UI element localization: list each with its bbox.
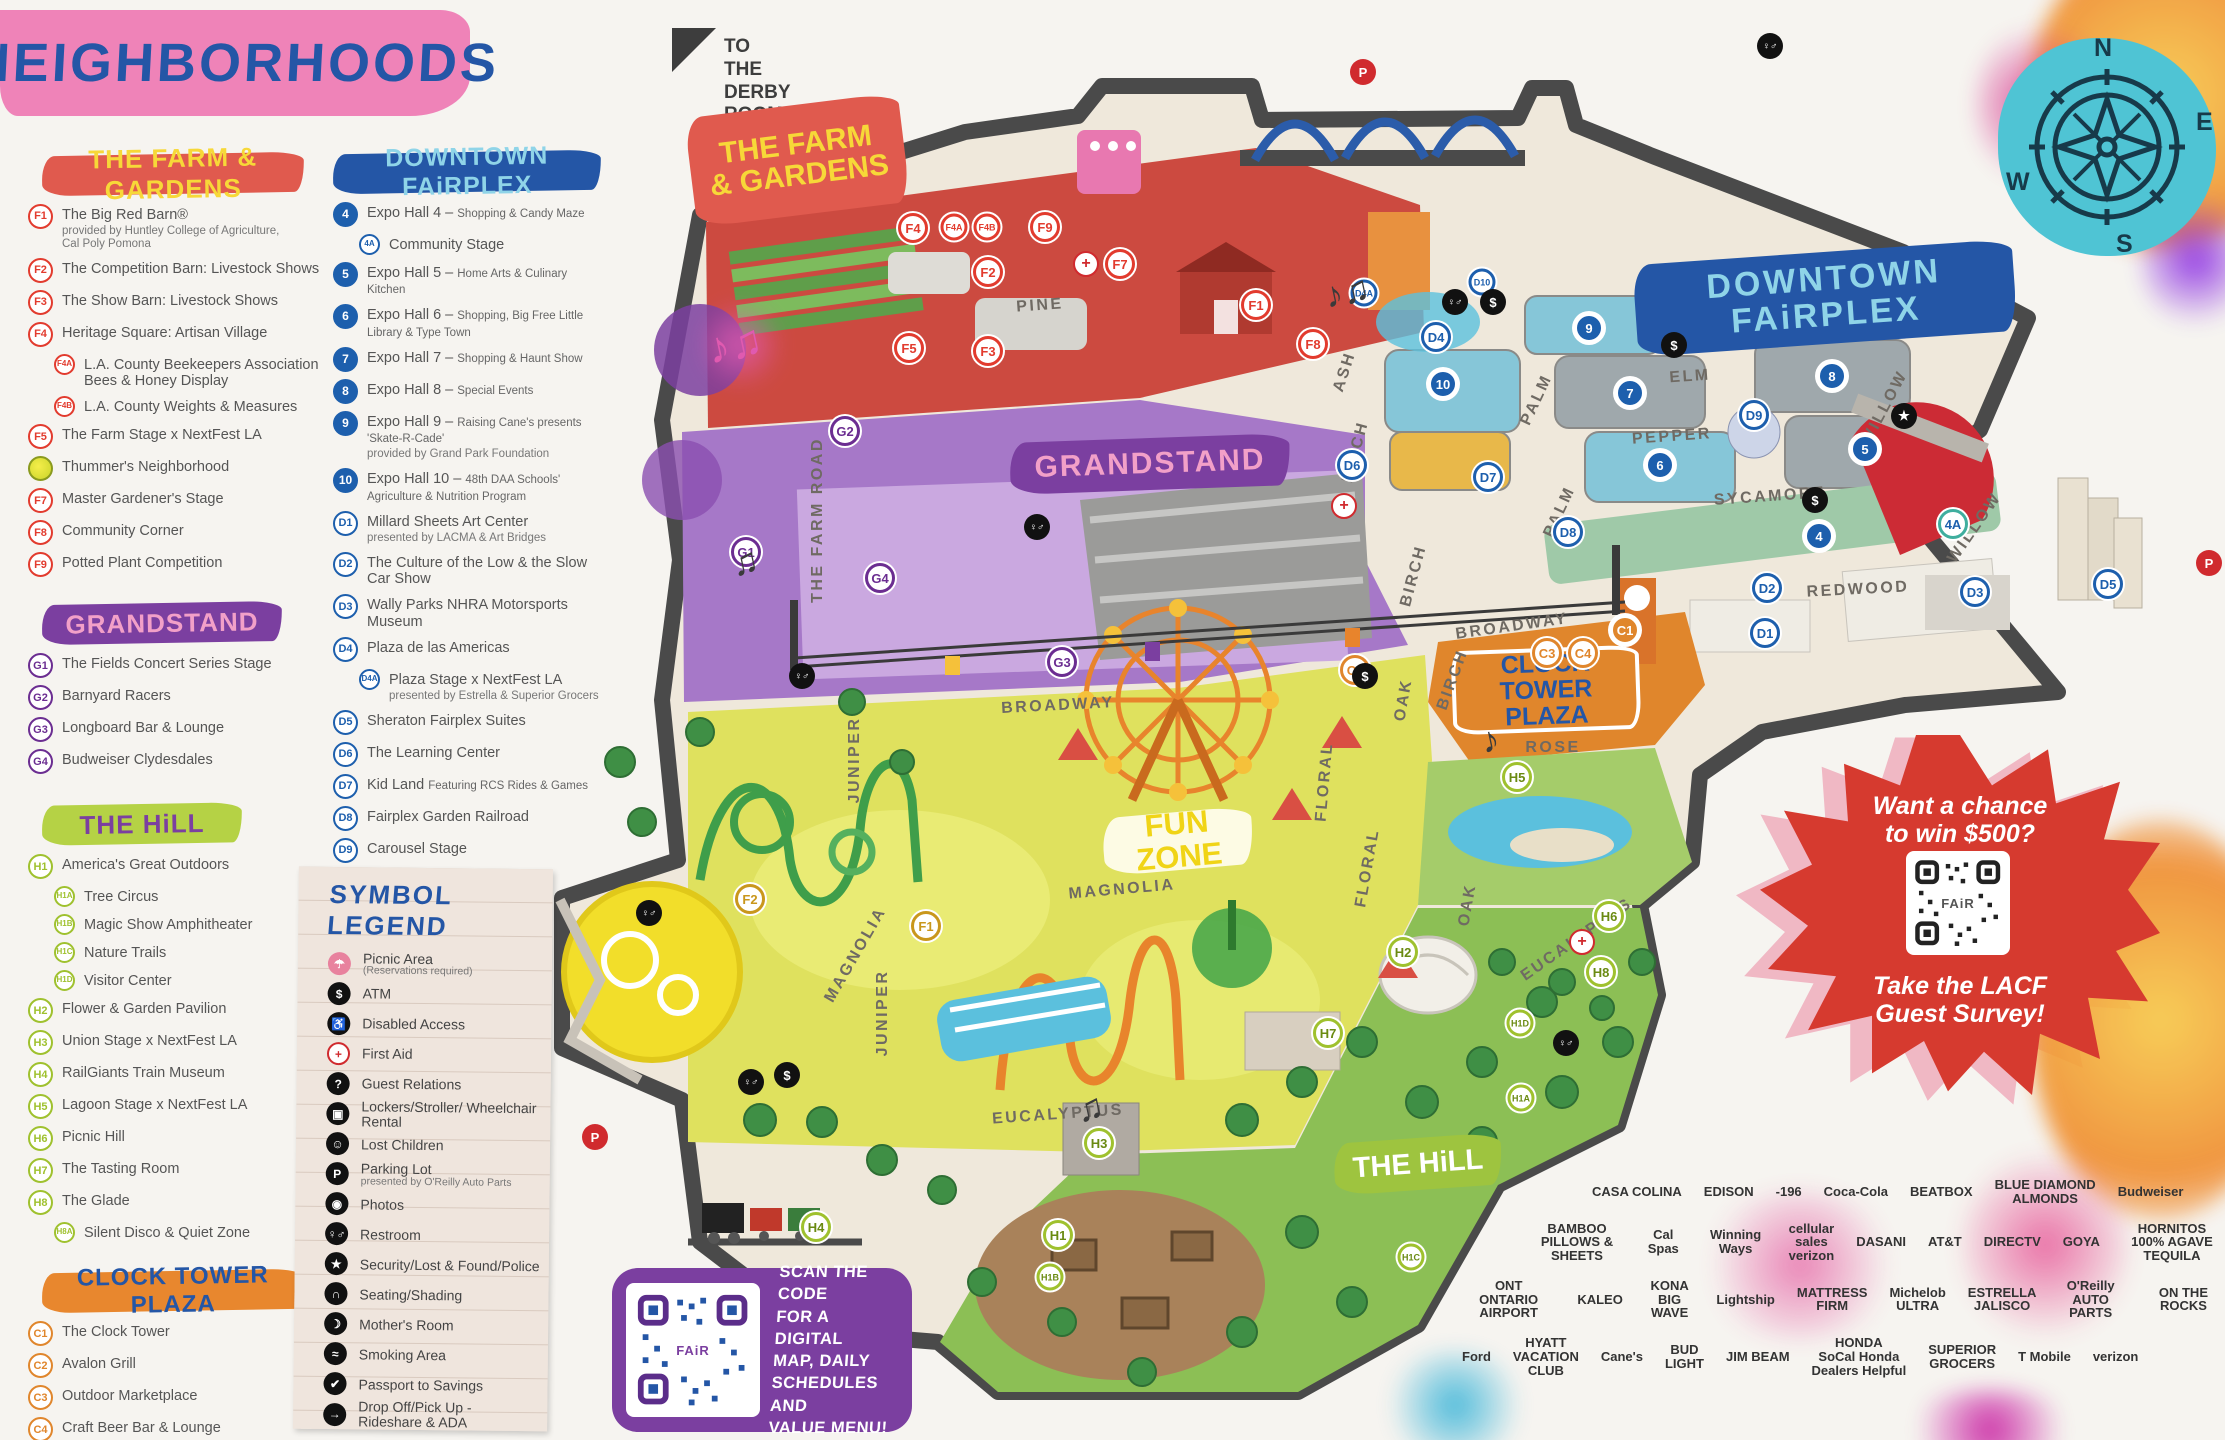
item-badge: F1 bbox=[28, 204, 53, 229]
sponsor-logo: MATTRESS FIRM bbox=[1797, 1286, 1868, 1314]
legend-item: 4A Community Stage bbox=[359, 234, 608, 255]
map-marker: D9 bbox=[1739, 400, 1769, 430]
item-badge: G1 bbox=[28, 653, 53, 678]
legend-item: H2 Flower & Garden Pavilion bbox=[28, 998, 323, 1023]
map-marker: D5 bbox=[2093, 569, 2123, 599]
legend-section-hill: THE HiLL H1 America's Great Outdoors H1A… bbox=[28, 804, 323, 1243]
sponsor-logo: KONA BIG WAVE bbox=[1645, 1279, 1695, 1320]
item-badge: 4A bbox=[359, 234, 380, 255]
item-badge: H3 bbox=[28, 1030, 53, 1055]
map-marker: 9 bbox=[1574, 313, 1604, 343]
legend-item: F9 Potted Plant Competition bbox=[28, 552, 323, 577]
legend-item: C3 Outdoor Marketplace bbox=[28, 1385, 323, 1410]
amenity-icon: ♀♂ bbox=[738, 1069, 764, 1095]
amenity-icon: + bbox=[1569, 929, 1595, 955]
symbol-label: Disabled Access bbox=[362, 1016, 465, 1033]
item-badge: H2 bbox=[28, 998, 53, 1023]
item-label: Fairplex Garden Railroad bbox=[367, 809, 529, 825]
item-label: Union Stage x NextFest LA bbox=[62, 1033, 237, 1049]
item-badge: 7 bbox=[333, 347, 358, 372]
item-badge: D7 bbox=[333, 774, 358, 799]
item-badge: H8 bbox=[28, 1190, 53, 1215]
symbol-legend-row: ≈ Smoking Area bbox=[324, 1339, 540, 1370]
sponsor-logo: O'Reilly AUTO PARTS bbox=[2058, 1279, 2122, 1320]
legend-item: D2 The Culture of the Low & the Slow Car… bbox=[333, 552, 608, 587]
item-label: Community Corner bbox=[62, 523, 184, 539]
item-label: The Fields Concert Series Stage bbox=[62, 656, 272, 672]
item-label: Budweiser Clydesdales bbox=[62, 752, 213, 768]
item-label: The Competition Barn: Livestock Shows bbox=[62, 261, 319, 277]
legend-item: H1B Magic Show Amphitheater bbox=[54, 914, 323, 935]
map-marker: C1 bbox=[1610, 615, 1640, 645]
symbol-label: Passport to Savings bbox=[358, 1376, 483, 1393]
item-badge: H1 bbox=[28, 854, 53, 879]
item-label: Heritage Square: Artisan Village bbox=[62, 325, 267, 341]
item-badge: D4A bbox=[359, 669, 380, 690]
item-badge: H1D bbox=[54, 970, 75, 991]
legend-item: H8A Silent Disco & Quiet Zone bbox=[54, 1222, 323, 1243]
map-marker: F2 bbox=[735, 884, 765, 914]
item-badge: F9 bbox=[28, 552, 53, 577]
symbol-label: First Aid bbox=[362, 1046, 413, 1063]
legend-item: G4 Budweiser Clydesdales bbox=[28, 749, 323, 774]
legend-item: H8 The Glade bbox=[28, 1190, 323, 1215]
item-label: RailGiants Train Museum bbox=[62, 1065, 225, 1081]
item-label: Expo Hall 7 – bbox=[367, 350, 453, 366]
item-badge: H8A bbox=[54, 1222, 75, 1243]
sponsor-logo: BUD LIGHT bbox=[1665, 1343, 1704, 1371]
legend-item: D1 Millard Sheets Art Centerpresented by… bbox=[333, 511, 608, 545]
fair-logo: FAiR bbox=[674, 1343, 712, 1358]
legend-item: 7 Expo Hall 7 –Shopping & Haunt Show bbox=[333, 347, 608, 372]
item-label: Silent Disco & Quiet Zone bbox=[84, 1225, 250, 1241]
map-marker: 10 bbox=[1428, 369, 1458, 399]
legend-column-left: THE FARM & GARDENS F1 The Big Red Barn®p… bbox=[28, 148, 323, 1440]
sponsor-logo: BAMBOO PILLOWS & SHEETS bbox=[1532, 1222, 1622, 1263]
item-label: Barnyard Racers bbox=[62, 688, 171, 704]
map-banner-grandstand: GRANDSTAND bbox=[1009, 433, 1291, 495]
item-label: Avalon Grill bbox=[62, 1356, 136, 1372]
sponsor-logo: Coca-Cola bbox=[1824, 1185, 1888, 1199]
section-list-farm: F1 The Big Red Barn®provided by Huntley … bbox=[28, 204, 323, 577]
amenity-icon: ♀♂ bbox=[1553, 1030, 1579, 1056]
legend-item: F1 The Big Red Barn®provided by Huntley … bbox=[28, 204, 323, 251]
map-marker: H6 bbox=[1594, 901, 1624, 931]
amenity-icon: $ bbox=[1480, 289, 1506, 315]
map-marker: H2 bbox=[1388, 937, 1418, 967]
item-label: Carousel Stage bbox=[367, 841, 467, 857]
sponsor-logo: HYATT VACATION CLUB bbox=[1513, 1336, 1579, 1377]
legend-item: Thummer's Neighborhood bbox=[28, 456, 323, 481]
map-marker: F1 bbox=[1241, 290, 1271, 320]
legend-item: 6 Expo Hall 6 –Shopping, Big Free Little… bbox=[333, 304, 608, 339]
item-label: Expo Hall 5 – bbox=[367, 265, 453, 281]
map-marker: 5 bbox=[1850, 434, 1880, 464]
sponsor-row-3: ONT ONTARIO AIRPORTKALEOKONA BIG WAVELig… bbox=[1462, 1279, 2222, 1320]
legend-item: D4 Plaza de las Americas bbox=[333, 637, 608, 662]
map-marker: F8 bbox=[1298, 329, 1328, 359]
item-badge: F7 bbox=[28, 488, 53, 513]
street-label: THE FARM ROAD bbox=[809, 437, 827, 603]
map-marker: H4 bbox=[801, 1212, 831, 1242]
legend-item: F8 Community Corner bbox=[28, 520, 323, 545]
map-marker: F4A bbox=[941, 214, 968, 241]
item-badge: D5 bbox=[333, 710, 358, 735]
legend-item: C1 The Clock Tower bbox=[28, 1321, 323, 1346]
amenity-icon: P bbox=[2196, 550, 2222, 576]
item-label: Tree Circus bbox=[84, 889, 158, 905]
symbol-label: Seating/Shading bbox=[359, 1286, 462, 1303]
item-badge: G4 bbox=[28, 749, 53, 774]
item-label: Magic Show Amphitheater bbox=[84, 917, 252, 933]
symbol-label: Security/Lost & Found/Police bbox=[360, 1256, 540, 1274]
item-badge: H6 bbox=[28, 1126, 53, 1151]
sponsor-logo: Cal Spas bbox=[1644, 1228, 1683, 1256]
amenity-icon: ♀♂ bbox=[1757, 33, 1783, 59]
map-marker: D8 bbox=[1553, 517, 1583, 547]
legend-item: D9 Carousel Stage bbox=[333, 838, 608, 863]
map-marker: G3 bbox=[1047, 647, 1077, 677]
sponsor-logo: Ford bbox=[1462, 1350, 1491, 1364]
section-list-downtown: 4 Expo Hall 4 –Shopping & Candy Maze 4A … bbox=[333, 202, 608, 895]
map-marker: F7 bbox=[1105, 249, 1135, 279]
item-badge: D8 bbox=[333, 806, 358, 831]
sponsor-row-2: BAMBOO PILLOWS & SHEETSCal SpasWinning W… bbox=[1532, 1222, 2222, 1263]
item-label: L.A. County Weights & Measures bbox=[84, 399, 297, 415]
item-badge: D1 bbox=[333, 511, 358, 536]
map-banner-fun-zone: FUN ZONE bbox=[1101, 806, 1255, 877]
symbol-legend-row: ◉ Photos bbox=[325, 1189, 541, 1220]
map-marker: H1A bbox=[1508, 1085, 1535, 1112]
map-marker: 6 bbox=[1645, 450, 1675, 480]
sponsor-logo: KALEO bbox=[1577, 1293, 1623, 1307]
legend-item: F4A L.A. County Beekeepers Association B… bbox=[54, 354, 323, 389]
legend-item: 9 Expo Hall 9 –Raising Cane's presents '… bbox=[333, 411, 608, 461]
symbol-legend-header: SYMBOL LEGEND bbox=[326, 879, 547, 943]
compass-icon bbox=[2019, 59, 2195, 235]
map-marker: F9 bbox=[1030, 212, 1060, 242]
symbol-label: Drop Off/Pick Up - Rideshare & ADA bbox=[358, 1399, 472, 1431]
street-label: ROSE bbox=[1525, 739, 1580, 757]
item-badge: C1 bbox=[28, 1321, 53, 1346]
item-badge: 6 bbox=[333, 304, 358, 329]
item-label: Longboard Bar & Lounge bbox=[62, 720, 224, 736]
symbol-icon: $ bbox=[328, 982, 351, 1005]
item-badge: D2 bbox=[333, 552, 358, 577]
item-label: America's Great Outdoors bbox=[62, 857, 229, 873]
sponsor-logo: -196 bbox=[1776, 1185, 1802, 1199]
section-list-clock-tower: C1 The Clock Tower C2 Avalon Grill C3 Ou… bbox=[28, 1321, 323, 1440]
item-label: Flower & Garden Pavilion bbox=[62, 1001, 226, 1017]
sponsor-logo: BLUE DIAMOND ALMONDS bbox=[1995, 1178, 2096, 1206]
symbol-label: Guest Relations bbox=[362, 1076, 462, 1093]
symbol-legend-row: ♿ Disabled Access bbox=[327, 1009, 543, 1040]
legend-item: F4 Heritage Square: Artisan Village bbox=[28, 322, 323, 347]
symbol-legend-row: ✔ Passport to Savings bbox=[323, 1369, 539, 1400]
symbol-legend-row: ∩ Seating/Shading bbox=[324, 1279, 540, 1310]
sponsor-logo: verizon bbox=[2093, 1350, 2139, 1364]
sponsor-logo: T Mobile bbox=[2018, 1350, 2071, 1364]
symbol-icon: ≈ bbox=[324, 1342, 347, 1365]
item-badge: 4 bbox=[333, 202, 358, 227]
item-label: Expo Hall 8 – bbox=[367, 382, 453, 398]
item-label: The Tasting Room bbox=[62, 1161, 179, 1177]
legend-item: D6 The Learning Center bbox=[333, 742, 608, 767]
map-marker: 7 bbox=[1615, 378, 1645, 408]
item-badge: G3 bbox=[28, 717, 53, 742]
item-label: Plaza Stage x NextFest LA bbox=[389, 672, 562, 688]
amenity-icon: $ bbox=[1802, 487, 1828, 513]
map-marker: C3 bbox=[1532, 638, 1562, 668]
sponsor-logo: Cane's bbox=[1601, 1350, 1643, 1364]
legend-item: C2 Avalon Grill bbox=[28, 1353, 323, 1378]
sponsor-logo: DASANI bbox=[1856, 1235, 1906, 1249]
street-label: ELM bbox=[1669, 367, 1711, 388]
map-marker: D7 bbox=[1473, 462, 1503, 492]
symbol-icon: ◉ bbox=[325, 1192, 348, 1215]
map-marker: D4 bbox=[1421, 322, 1451, 352]
sponsor-row-1: CASA COLINAEDISON-196Coca-ColaBEATBOXBLU… bbox=[1592, 1178, 2222, 1206]
compass-n: N bbox=[2094, 34, 2112, 63]
legend-item: H1A Tree Circus bbox=[54, 886, 323, 907]
symbol-label: ATM bbox=[363, 986, 392, 1002]
sponsor-logo: AT&T bbox=[1928, 1235, 1962, 1249]
legend-item: F7 Master Gardener's Stage bbox=[28, 488, 323, 513]
item-badge: F5 bbox=[28, 424, 53, 449]
item-label: Community Stage bbox=[389, 237, 504, 253]
map-marker: H8 bbox=[1586, 957, 1616, 987]
legend-item: F5 The Farm Stage x NextFest LA bbox=[28, 424, 323, 449]
sponsor-logo: Winning Ways bbox=[1705, 1228, 1767, 1256]
map-marker: H1B bbox=[1037, 1264, 1064, 1291]
item-badge: D4 bbox=[333, 637, 358, 662]
amenity-icon: $ bbox=[1352, 663, 1378, 689]
item-badge: 5 bbox=[333, 262, 358, 287]
symbol-legend-row: ☂ Picnic Area(Reservations required) bbox=[328, 949, 544, 980]
item-label: The Learning Center bbox=[367, 745, 500, 761]
legend-section-grandstand: GRANDSTAND G1 The Fields Concert Series … bbox=[28, 603, 323, 774]
legend-item: G1 The Fields Concert Series Stage bbox=[28, 653, 323, 678]
item-label: The Big Red Barn® bbox=[62, 207, 188, 223]
map-marker: F4 bbox=[898, 213, 928, 243]
symbol-legend-row: P Parking Lotpresented by O'Reilly Auto … bbox=[326, 1159, 542, 1190]
compass-s: S bbox=[2116, 230, 2133, 259]
legend-section-farm: THE FARM & GARDENS F1 The Big Red Barn®p… bbox=[28, 154, 323, 577]
amenity-icon: ♀♂ bbox=[1024, 514, 1050, 540]
item-badge: D6 bbox=[333, 742, 358, 767]
map-marker: F2 bbox=[973, 257, 1003, 287]
compass-rose: N E S W bbox=[1998, 38, 2216, 256]
symbol-legend-list: ☂ Picnic Area(Reservations required) $ A… bbox=[323, 949, 544, 1431]
item-label: Thummer's Neighborhood bbox=[62, 459, 229, 475]
section-list-hill: H1 America's Great Outdoors H1A Tree Cir… bbox=[28, 854, 323, 1243]
survey-starburst: Want a chance to win $500? FAiR Take the… bbox=[1760, 735, 2160, 1095]
amenity-icon: ★ bbox=[1891, 403, 1917, 429]
item-label: Nature Trails bbox=[84, 945, 166, 961]
legend-item: H1 America's Great Outdoors bbox=[28, 854, 323, 879]
legend-item: D3 Wally Parks NHRA Motorsports Museum bbox=[333, 594, 608, 629]
symbol-legend-row: + First Aid bbox=[327, 1039, 543, 1070]
item-label: Craft Beer Bar & Lounge bbox=[62, 1420, 221, 1436]
symbol-legend-row: ♀♂ Restroom bbox=[325, 1219, 541, 1250]
amenity-icon: + bbox=[1331, 493, 1357, 519]
legend-item: D5 Sheraton Fairplex Suites bbox=[333, 710, 608, 735]
amenity-icon: $ bbox=[1661, 332, 1687, 358]
symbol-icon: + bbox=[327, 1042, 350, 1065]
map-marker: G2 bbox=[830, 416, 860, 446]
item-badge: F8 bbox=[28, 520, 53, 545]
symbol-legend-panel: SYMBOL LEGEND ☂ Picnic Area(Reservations… bbox=[293, 867, 553, 1432]
legend-item: 4 Expo Hall 4 –Shopping & Candy Maze bbox=[333, 202, 608, 227]
item-label: The Show Barn: Livestock Shows bbox=[62, 293, 278, 309]
legend-section-clock-tower: CLOCK TOWER PLAZA C1 The Clock Tower C2 … bbox=[28, 1271, 323, 1440]
symbol-legend-row: ? Guest Relations bbox=[327, 1069, 543, 1100]
sponsor-logo: ON THE ROCKS bbox=[2145, 1286, 2222, 1314]
item-badge: F2 bbox=[28, 258, 53, 283]
item-badge: 8 bbox=[333, 379, 358, 404]
legend-item: H5 Lagoon Stage x NextFest LA bbox=[28, 1094, 323, 1119]
survey-headline: Want a chance to win $500? bbox=[1760, 793, 2160, 848]
sponsor-logo: ESTRELLA JALISCO bbox=[1968, 1286, 2037, 1314]
item-label: Visitor Center bbox=[84, 973, 172, 989]
symbol-icon: ☽ bbox=[324, 1312, 347, 1335]
legend-item: H3 Union Stage x NextFest LA bbox=[28, 1030, 323, 1055]
amenity-icon: + bbox=[1073, 251, 1099, 277]
page-title: NEIGHBORHOODS bbox=[0, 32, 501, 94]
legend-item: D7 Kid LandFeaturing RCS Rides & Games bbox=[333, 774, 608, 799]
legend-item: H6 Picnic Hill bbox=[28, 1126, 323, 1151]
arrow-icon bbox=[672, 28, 716, 72]
street-label: PINE bbox=[1016, 295, 1064, 316]
item-label: L.A. County Beekeepers Association Bees … bbox=[84, 357, 319, 389]
sponsor-logo: DIRECTV bbox=[1984, 1235, 2041, 1249]
symbol-label: Lockers/Stroller/ Wheelchair Rental bbox=[361, 1098, 536, 1129]
legend-item: F2 The Competition Barn: Livestock Shows bbox=[28, 258, 323, 283]
map-marker: F4B bbox=[974, 214, 1001, 241]
amenity-icon: ♀♂ bbox=[636, 900, 662, 926]
map-marker: 4A bbox=[1938, 509, 1968, 539]
amenity-icon: ♀♂ bbox=[1442, 289, 1468, 315]
street-label: JUNIPER bbox=[874, 970, 892, 1057]
item-badge: 9 bbox=[333, 411, 358, 436]
sponsor-logo: EDISON bbox=[1704, 1185, 1754, 1199]
item-label: Master Gardener's Stage bbox=[62, 491, 224, 507]
legend-item: 10 Expo Hall 10 –48th DAA Schools' Agric… bbox=[333, 468, 608, 503]
symbol-legend-row: $ ATM bbox=[327, 979, 543, 1010]
item-label: Plaza de las Americas bbox=[367, 640, 510, 656]
symbol-label: Smoking Area bbox=[359, 1346, 446, 1363]
item-label: The Clock Tower bbox=[62, 1324, 170, 1340]
map-marker: F3 bbox=[973, 336, 1003, 366]
symbol-icon: ▣ bbox=[326, 1102, 349, 1125]
symbol-icon: P bbox=[326, 1162, 349, 1185]
legend-item: H1C Nature Trails bbox=[54, 942, 323, 963]
sponsor-logo: JIM BEAM bbox=[1726, 1350, 1790, 1364]
legend-item: H1D Visitor Center bbox=[54, 970, 323, 991]
neighborhoods-banner: NEIGHBORHOODS bbox=[0, 10, 470, 116]
item-label: Expo Hall 10 – bbox=[367, 471, 461, 487]
sponsor-logo: ONT ONTARIO AIRPORT bbox=[1462, 1279, 1555, 1320]
item-badge: F3 bbox=[28, 290, 53, 315]
symbol-icon: ✔ bbox=[323, 1372, 346, 1395]
symbol-legend-row: → Drop Off/Pick Up - Rideshare & ADA bbox=[323, 1399, 539, 1431]
compass-e: E bbox=[2196, 108, 2213, 137]
item-badge: F4 bbox=[28, 322, 53, 347]
legend-item: H7 The Tasting Room bbox=[28, 1158, 323, 1183]
map-marker: 8 bbox=[1817, 361, 1847, 391]
map-marker: D2 bbox=[1752, 573, 1782, 603]
survey-cta: Take the LACF Guest Survey! bbox=[1760, 973, 2160, 1028]
legend-item: 8 Expo Hall 8 –Special Events bbox=[333, 379, 608, 404]
symbol-icon: ∩ bbox=[324, 1282, 347, 1305]
amenity-icon: P bbox=[582, 1124, 608, 1150]
item-label: Expo Hall 6 – bbox=[367, 307, 453, 323]
sponsor-logos: CASA COLINAEDISON-196Coca-ColaBEATBOXBLU… bbox=[1462, 1178, 2222, 1393]
sponsor-logo: SUPERIOR GROCERS bbox=[1928, 1343, 1996, 1371]
item-label: Outdoor Marketplace bbox=[62, 1388, 197, 1404]
legend-item: D8 Fairplex Garden Railroad bbox=[333, 806, 608, 831]
map-marker: C4 bbox=[1568, 638, 1598, 668]
map-marker: H1 bbox=[1043, 1220, 1073, 1250]
fair-logo: FAiR bbox=[1939, 896, 1977, 911]
map-marker: H3 bbox=[1084, 1128, 1114, 1158]
legend-item: G3 Longboard Bar & Lounge bbox=[28, 717, 323, 742]
sponsor-row-4: FordHYATT VACATION CLUBCane'sBUD LIGHTJI… bbox=[1462, 1336, 2222, 1377]
map-qr-code: FAiR bbox=[626, 1283, 760, 1417]
section-header-grandstand: GRANDSTAND bbox=[42, 601, 283, 645]
symbol-icon: ★ bbox=[325, 1252, 348, 1275]
symbol-icon: → bbox=[323, 1403, 346, 1426]
symbol-icon: ♀♂ bbox=[325, 1222, 348, 1245]
sponsor-logo: HONDA SoCal Honda Dealers Helpful bbox=[1812, 1336, 1907, 1377]
amenity-icon: P bbox=[1350, 59, 1376, 85]
item-badge: C3 bbox=[28, 1385, 53, 1410]
map-marker: 4 bbox=[1804, 521, 1834, 551]
item-label: Expo Hall 9 – bbox=[367, 414, 453, 430]
item-badge: C4 bbox=[28, 1417, 53, 1440]
symbol-label: Photos bbox=[360, 1196, 404, 1212]
item-badge: D9 bbox=[333, 838, 358, 863]
sponsor-logo: CASA COLINA bbox=[1592, 1185, 1682, 1199]
item-label: Sheraton Fairplex Suites bbox=[367, 713, 526, 729]
item-badge: D3 bbox=[333, 594, 358, 619]
digital-map-qr-panel: FAiR SCAN THE CODE FOR A DIGITAL MAP, DA… bbox=[612, 1268, 912, 1432]
legend-item: F3 The Show Barn: Livestock Shows bbox=[28, 290, 323, 315]
amenity-icon: $ bbox=[774, 1062, 800, 1088]
symbol-legend-row: ☽ Mother's Room bbox=[324, 1309, 540, 1340]
sponsor-logo: BEATBOX bbox=[1910, 1185, 1973, 1199]
compass-w: W bbox=[2006, 168, 2030, 197]
section-header-hill: THE HiLL bbox=[42, 803, 243, 846]
sponsor-logo: cellular sales verizon bbox=[1789, 1222, 1835, 1263]
map-marker: F1 bbox=[911, 911, 941, 941]
legend-item: F4B L.A. County Weights & Measures bbox=[54, 396, 323, 417]
map-marker: H1D bbox=[1507, 1010, 1534, 1037]
item-label: Lagoon Stage x NextFest LA bbox=[62, 1097, 247, 1113]
map-marker: D1 bbox=[1750, 618, 1780, 648]
legend-item: D4A Plaza Stage x NextFest LApresented b… bbox=[359, 669, 608, 703]
item-label: Millard Sheets Art Center bbox=[367, 514, 528, 530]
item-badge: H4 bbox=[28, 1062, 53, 1087]
sponsor-logo: HORNITOS 100% AGAVE TEQUILA bbox=[2122, 1222, 2222, 1263]
item-label: Kid Land bbox=[367, 777, 424, 793]
sponsor-logo: Michelob ULTRA bbox=[1889, 1286, 1945, 1314]
section-header-clock-tower: CLOCK TOWER PLAZA bbox=[42, 1269, 305, 1314]
qr-panel-text: SCAN THE CODE FOR A DIGITAL MAP, DAILY S… bbox=[768, 1261, 904, 1439]
item-badge: H1B bbox=[54, 914, 75, 935]
symbol-icon: ? bbox=[327, 1072, 350, 1095]
item-badge: F4B bbox=[54, 396, 75, 417]
